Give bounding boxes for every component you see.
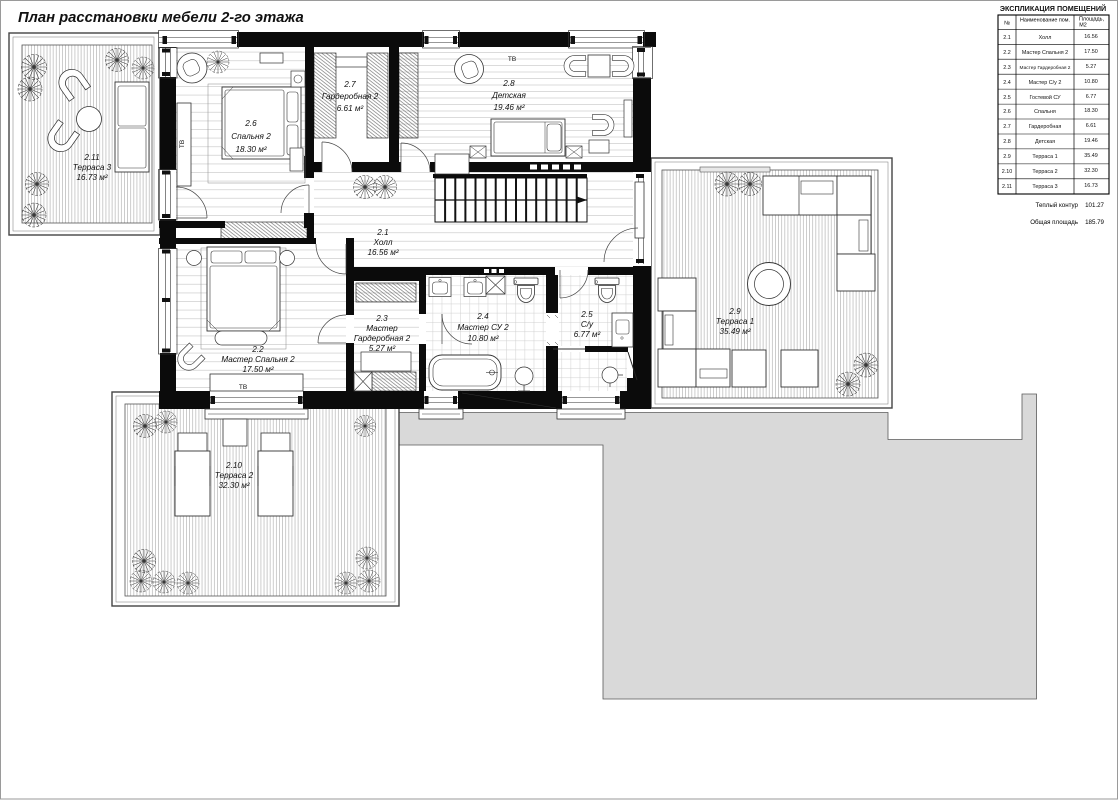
svg-text:Мастер Гардеробная 2: Мастер Гардеробная 2 [1020, 65, 1071, 71]
svg-text:6.61: 6.61 [1086, 123, 1097, 129]
svg-text:План расстановки мебели 2-го э: План расстановки мебели 2-го этажа [18, 10, 304, 26]
svg-text:2.11: 2.11 [1002, 184, 1012, 190]
svg-text:Терраса 3: Терраса 3 [1032, 184, 1057, 190]
svg-text:Мастер СУ 2: Мастер СУ 2 [457, 323, 509, 332]
svg-text:2.4: 2.4 [476, 312, 489, 321]
svg-text:2.6: 2.6 [244, 119, 257, 128]
svg-text:2.4: 2.4 [1003, 80, 1011, 86]
svg-text:Холл: Холл [373, 238, 393, 247]
svg-text:Мастер Спальня 2: Мастер Спальня 2 [221, 355, 295, 364]
svg-text:5.27 м²: 5.27 м² [369, 344, 396, 353]
svg-text:32.30 м²: 32.30 м² [218, 481, 249, 490]
svg-text:18.30 м²: 18.30 м² [235, 145, 266, 154]
svg-text:2.1: 2.1 [376, 228, 388, 237]
svg-text:Гардеробная 2: Гардеробная 2 [354, 334, 411, 343]
svg-text:19.46: 19.46 [1084, 138, 1098, 144]
svg-text:2.2: 2.2 [251, 345, 264, 354]
svg-text:ТВ: ТВ [239, 384, 247, 391]
svg-text:Мастер Спальня 2: Мастер Спальня 2 [1022, 50, 1068, 56]
svg-text:Терраса 1: Терраса 1 [716, 317, 754, 326]
svg-text:Гостевой СУ: Гостевой СУ [1029, 94, 1061, 101]
svg-text:Спальня: Спальня [1034, 109, 1056, 115]
svg-text:16.56: 16.56 [1084, 34, 1098, 40]
svg-text:2.2: 2.2 [1003, 50, 1011, 56]
svg-text:Наименование пом.: Наименование пом. [1020, 18, 1070, 24]
svg-text:Гардеробная: Гардеробная [1029, 124, 1062, 130]
svg-text:2.1: 2.1 [1003, 35, 1011, 41]
svg-text:16.73: 16.73 [1084, 183, 1098, 189]
svg-text:Общая площадь: Общая площадь [1030, 219, 1078, 226]
svg-text:16.56 м²: 16.56 м² [367, 248, 398, 257]
svg-text:2.6: 2.6 [1003, 109, 1011, 115]
svg-text:Теплый контур: Теплый контур [1036, 202, 1079, 209]
svg-text:Терраса 2: Терраса 2 [215, 471, 254, 480]
svg-text:5.27: 5.27 [1086, 64, 1097, 70]
svg-text:Терраса 2: Терраса 2 [1032, 169, 1057, 175]
svg-text:С/у: С/у [581, 320, 594, 329]
svg-text:17.50: 17.50 [1084, 49, 1098, 55]
svg-text:2.7: 2.7 [343, 80, 356, 89]
svg-text:17.50 м²: 17.50 м² [242, 365, 273, 374]
svg-text:32.30: 32.30 [1084, 168, 1098, 174]
svg-text:16.73 м²: 16.73 м² [76, 173, 107, 182]
svg-text:18.30: 18.30 [1084, 108, 1098, 114]
svg-text:185.79: 185.79 [1085, 219, 1104, 226]
svg-text:35.49: 35.49 [1084, 153, 1098, 159]
svg-text:Гардеробная 2: Гардеробная 2 [322, 92, 379, 101]
svg-text:2.10: 2.10 [225, 461, 242, 470]
svg-text:2.9: 2.9 [1003, 154, 1011, 160]
svg-text:Мастер С/у 2: Мастер С/у 2 [1029, 80, 1062, 86]
svg-text:2.11: 2.11 [83, 153, 99, 162]
svg-text:Терраса 3: Терраса 3 [73, 163, 112, 172]
svg-text:19.46 м²: 19.46 м² [493, 103, 524, 112]
svg-text:Детская: Детская [1035, 139, 1055, 145]
svg-text:6.77: 6.77 [1086, 94, 1097, 100]
svg-text:2.8: 2.8 [502, 79, 515, 88]
svg-text:10.80 м²: 10.80 м² [467, 334, 498, 343]
svg-text:6.77 м²: 6.77 м² [574, 330, 601, 339]
svg-text:6.61 м²: 6.61 м² [337, 104, 364, 113]
svg-text:2.3: 2.3 [1003, 65, 1011, 71]
svg-text:Детская: Детская [491, 91, 526, 100]
svg-text:Холл: Холл [1039, 35, 1052, 41]
svg-text:2.3: 2.3 [375, 314, 388, 323]
svg-text:101.27: 101.27 [1085, 202, 1104, 209]
svg-text:ТВ: ТВ [179, 140, 186, 148]
svg-text:2.8: 2.8 [1003, 139, 1011, 145]
svg-text:2.5: 2.5 [1003, 95, 1011, 101]
svg-text:2.7: 2.7 [1003, 124, 1011, 130]
svg-text:10.80: 10.80 [1084, 79, 1098, 85]
svg-text:2.5: 2.5 [580, 310, 593, 319]
svg-text:35.49 м²: 35.49 м² [719, 327, 750, 336]
svg-text:М2: М2 [1079, 23, 1087, 29]
svg-text:2.10: 2.10 [1002, 169, 1013, 175]
svg-text:ТВ: ТВ [508, 56, 516, 63]
svg-text:ЭКСПЛИКАЦИЯ ПОМЕЩЕНИЙ: ЭКСПЛИКАЦИЯ ПОМЕЩЕНИЙ [1000, 4, 1106, 13]
svg-text:№: № [1004, 21, 1010, 27]
svg-text:2.9: 2.9 [728, 307, 741, 316]
svg-text:Спальня 2: Спальня 2 [231, 132, 271, 141]
svg-text:Мастер: Мастер [366, 324, 398, 333]
svg-text:Терраса 1: Терраса 1 [1032, 154, 1057, 160]
